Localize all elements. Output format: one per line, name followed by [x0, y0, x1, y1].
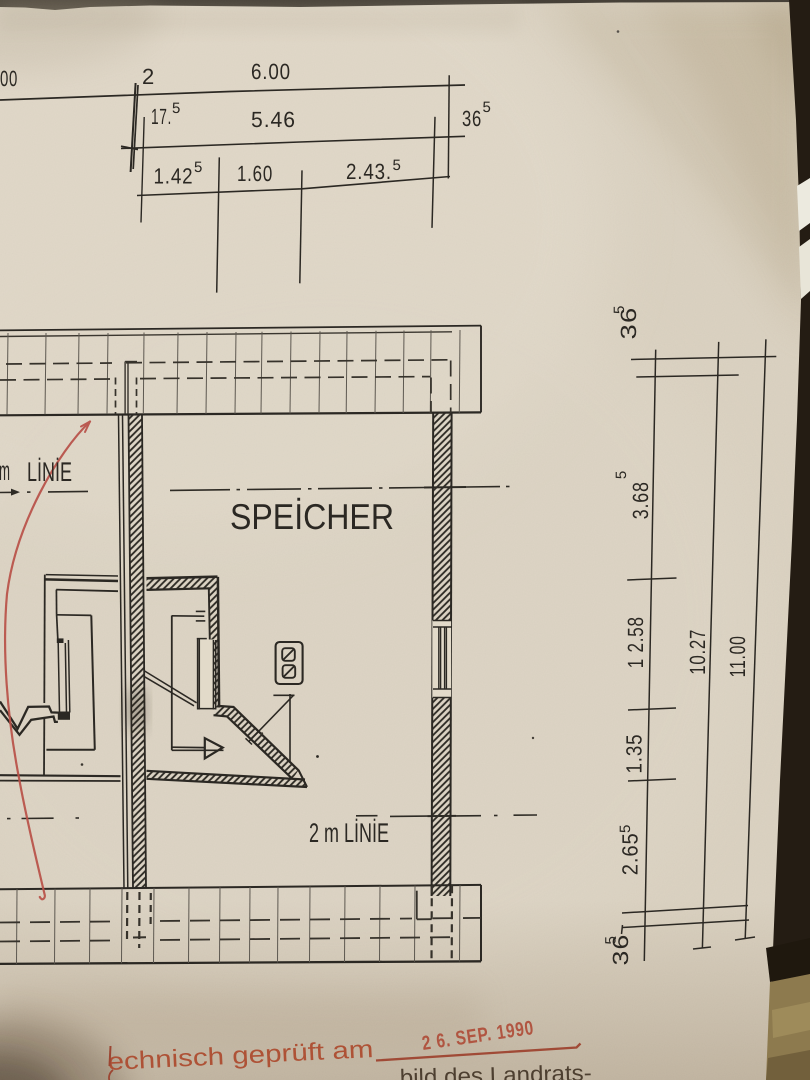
svg-text:1.42: 1.42	[154, 164, 194, 189]
svg-text:11.00: 11.00	[725, 635, 750, 677]
svg-text:6.00: 6.00	[251, 59, 291, 84]
svg-text:1 2.58: 1 2.58	[623, 616, 648, 668]
svg-text:SPEİCHER: SPEİCHER	[230, 496, 394, 537]
svg-text:LİNİE: LİNİE	[27, 457, 72, 487]
svg-text:2.65: 2.65	[618, 832, 643, 875]
svg-text:2 m LİNİE: 2 m LİNİE	[309, 818, 389, 848]
svg-text:2: 2	[142, 64, 155, 89]
svg-text:3.68: 3.68	[628, 481, 653, 519]
svg-text:36: 36	[462, 106, 482, 131]
svg-text:5: 5	[393, 157, 401, 174]
svg-text:17.: 17.	[151, 104, 172, 129]
svg-text:5: 5	[172, 100, 180, 117]
svg-text:5: 5	[611, 306, 628, 314]
svg-text:m: m	[0, 456, 10, 486]
svg-text:00: 00	[0, 66, 18, 91]
svg-text:5: 5	[603, 936, 620, 944]
svg-text:5: 5	[483, 99, 491, 116]
svg-text:2.43.: 2.43.	[346, 159, 392, 184]
svg-text:10.27: 10.27	[685, 629, 710, 675]
svg-text:5: 5	[617, 825, 634, 833]
svg-text:1.35: 1.35	[622, 734, 647, 774]
svg-text:5.46: 5.46	[251, 107, 296, 132]
svg-text:5: 5	[613, 471, 630, 479]
svg-text:5: 5	[194, 159, 202, 176]
svg-text:1.60: 1.60	[237, 161, 273, 186]
